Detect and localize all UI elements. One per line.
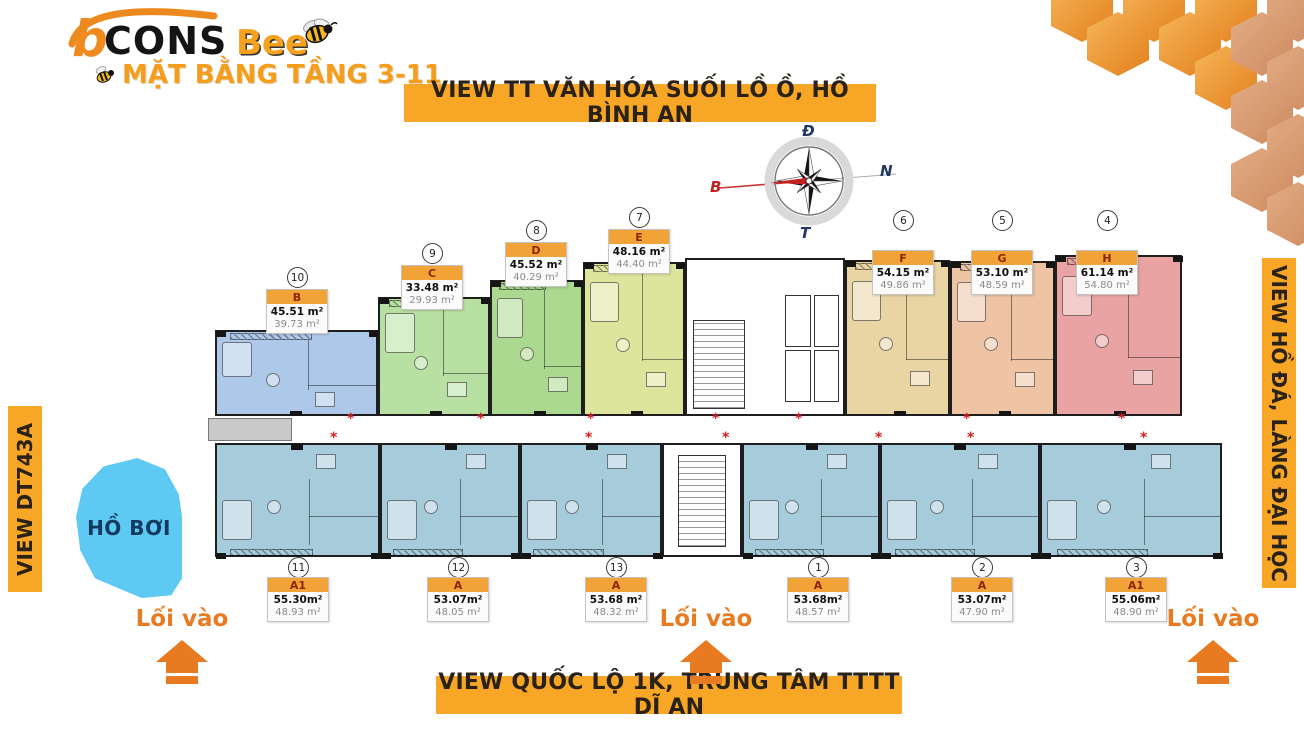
bathroom bbox=[646, 372, 666, 387]
elevator-cell bbox=[814, 295, 840, 347]
unit-area-usable: 48.05 m² bbox=[428, 606, 488, 621]
table bbox=[565, 500, 579, 514]
corridor-marker: * bbox=[587, 414, 594, 424]
unit-card-H-4: H61.14 m²54.80 m² bbox=[1076, 250, 1138, 295]
bed bbox=[387, 500, 417, 540]
unit-code: A1 bbox=[268, 578, 328, 592]
unit-number-badge: 7 bbox=[629, 207, 650, 228]
bed bbox=[887, 500, 917, 540]
stair-core-bottom bbox=[662, 443, 742, 557]
unit-area-construction: 45.52 m² bbox=[506, 257, 566, 271]
room-divider bbox=[460, 479, 461, 545]
unit-floorplan-A-2 bbox=[880, 443, 1040, 557]
entrance-arrow-part bbox=[166, 676, 198, 684]
unit-floorplan-A-13 bbox=[520, 443, 662, 557]
balcony-hatch bbox=[1057, 549, 1148, 556]
unit-card-C-9: C33.48 m²29.93 m² bbox=[401, 265, 463, 310]
room-divider bbox=[642, 359, 685, 360]
unit-floorplan-A1-3 bbox=[1040, 443, 1222, 557]
wall-pier bbox=[806, 444, 818, 450]
corridor-marker: * bbox=[795, 414, 802, 424]
bathroom bbox=[1015, 372, 1035, 387]
entrance-arrow-part bbox=[690, 676, 722, 684]
room-divider bbox=[602, 479, 603, 545]
entrance-arrow-icon bbox=[156, 640, 208, 684]
table bbox=[267, 500, 281, 514]
stair-elevator-core bbox=[685, 258, 845, 416]
bathroom bbox=[315, 392, 335, 407]
bathroom bbox=[1151, 454, 1171, 469]
bed bbox=[385, 313, 415, 353]
wall-pier bbox=[445, 444, 457, 450]
unit-floorplan-B bbox=[215, 330, 378, 416]
entrance-label: Lối vào bbox=[127, 606, 237, 632]
corridor-marker: * bbox=[963, 414, 970, 424]
unit-area-usable: 44.40 m² bbox=[609, 258, 669, 273]
bed bbox=[749, 500, 779, 540]
unit-area-usable: 39.73 m² bbox=[267, 318, 327, 333]
wall-pier bbox=[1041, 553, 1051, 559]
entrance-arrow-part bbox=[1197, 662, 1229, 673]
unit-floorplan-A-1 bbox=[742, 443, 880, 557]
bathroom bbox=[1133, 370, 1153, 385]
corridor-marker: * bbox=[1140, 433, 1147, 443]
table bbox=[424, 500, 438, 514]
unit-floorplan-A-12 bbox=[380, 443, 520, 557]
bed bbox=[497, 298, 523, 338]
unit-area-construction: 55.06m² bbox=[1106, 592, 1166, 606]
balcony-hatch bbox=[230, 549, 313, 556]
elevator-cell bbox=[785, 295, 811, 347]
bathroom bbox=[447, 382, 467, 397]
balcony-hatch bbox=[230, 333, 312, 340]
unit-card-F-6: F54.15 m²49.86 m² bbox=[872, 250, 934, 295]
staircase bbox=[678, 455, 726, 547]
unit-area-usable: 40.29 m² bbox=[506, 271, 566, 286]
unit-number-badge: 1 bbox=[808, 557, 829, 578]
balcony-hatch bbox=[755, 549, 824, 556]
room-divider bbox=[309, 516, 378, 517]
floorplan: *************10B45.51 m²39.73 m²9C33.48 … bbox=[0, 0, 1304, 729]
table bbox=[879, 337, 893, 351]
room-divider bbox=[906, 359, 950, 360]
entrance-arrow-part bbox=[166, 662, 198, 673]
unit-code: G bbox=[972, 251, 1032, 265]
wall-pier bbox=[379, 298, 389, 304]
bathroom bbox=[466, 454, 486, 469]
unit-area-usable: 49.86 m² bbox=[873, 279, 933, 294]
entrance-label: Lối vào bbox=[651, 606, 761, 632]
room-divider bbox=[821, 479, 822, 545]
unit-area-construction: 53.68m² bbox=[788, 592, 848, 606]
room-divider bbox=[1144, 516, 1220, 517]
bed bbox=[590, 282, 619, 322]
wall-pier bbox=[216, 331, 226, 337]
corridor-marker: * bbox=[477, 414, 484, 424]
unit-code: B bbox=[267, 290, 327, 304]
unit-area-usable: 48.32 m² bbox=[586, 606, 646, 621]
unit-code: C bbox=[402, 266, 462, 280]
room-divider bbox=[602, 516, 662, 517]
room-divider bbox=[308, 340, 309, 390]
wall-pier bbox=[1173, 256, 1183, 262]
unit-card-D-8: D45.52 m²40.29 m² bbox=[505, 242, 567, 287]
corridor-marker: * bbox=[330, 433, 337, 443]
bathroom bbox=[978, 454, 998, 469]
unit-number-badge: 8 bbox=[526, 220, 547, 241]
unit-code: F bbox=[873, 251, 933, 265]
table bbox=[984, 337, 998, 351]
unit-card-G-5: G53.10 m²48.59 m² bbox=[971, 250, 1033, 295]
bathroom bbox=[316, 454, 336, 469]
unit-number-badge: 9 bbox=[422, 243, 443, 264]
wall-pier bbox=[381, 553, 391, 559]
corridor-marker: * bbox=[712, 414, 719, 424]
unit-area-construction: 53.10 m² bbox=[972, 265, 1032, 279]
bed bbox=[222, 500, 252, 540]
entrance-label: Lối vào bbox=[1158, 606, 1268, 632]
unit-area-usable: 54.80 m² bbox=[1077, 279, 1137, 294]
entrance-arrow-part bbox=[1187, 640, 1239, 662]
corridor-marker: * bbox=[585, 433, 592, 443]
unit-number-badge: 6 bbox=[893, 210, 914, 231]
bathroom bbox=[607, 454, 627, 469]
elevator-cell bbox=[814, 350, 840, 402]
table bbox=[930, 500, 944, 514]
unit-card-A-13: A53.68 m²48.32 m² bbox=[585, 577, 647, 622]
wall-pier bbox=[1124, 444, 1136, 450]
unit-number-badge: 13 bbox=[606, 557, 627, 578]
unit-code: A bbox=[428, 578, 488, 592]
wall-pier bbox=[491, 281, 501, 287]
wall-pier bbox=[216, 553, 226, 559]
entrance-arrow-icon bbox=[1187, 640, 1239, 684]
unit-area-construction: 45.51 m² bbox=[267, 304, 327, 318]
entrance-arrow-icon bbox=[680, 640, 732, 684]
unit-code: E bbox=[609, 230, 669, 244]
room-divider bbox=[1011, 359, 1055, 360]
unit-floorplan-C bbox=[378, 297, 490, 416]
bed bbox=[1047, 500, 1077, 540]
balcony-hatch bbox=[533, 549, 604, 556]
room-divider bbox=[1128, 357, 1181, 358]
unit-number-badge: 5 bbox=[992, 210, 1013, 231]
service-box bbox=[208, 418, 292, 441]
unit-floorplan-D bbox=[490, 280, 583, 416]
table bbox=[785, 500, 799, 514]
unit-card-A-2: A53.07m²47.90 m² bbox=[951, 577, 1013, 622]
table bbox=[1095, 334, 1109, 348]
wall-pier bbox=[951, 262, 961, 268]
corridor-marker: * bbox=[967, 433, 974, 443]
entrance-arrow-part bbox=[156, 640, 208, 662]
balcony-hatch bbox=[895, 549, 975, 556]
unit-card-A-1: A53.68m²48.57 m² bbox=[787, 577, 849, 622]
unit-number-badge: 2 bbox=[972, 557, 993, 578]
room-divider bbox=[309, 479, 310, 545]
unit-number-badge: 11 bbox=[288, 557, 309, 578]
table bbox=[520, 347, 534, 361]
bed bbox=[527, 500, 557, 540]
unit-area-usable: 29.93 m² bbox=[402, 294, 462, 309]
room-divider bbox=[460, 516, 519, 517]
room-divider bbox=[821, 516, 879, 517]
wall-pier bbox=[743, 553, 753, 559]
elevator-cell bbox=[785, 350, 811, 402]
unit-number-badge: 10 bbox=[287, 267, 308, 288]
bathroom bbox=[910, 371, 930, 386]
unit-area-usable: 48.59 m² bbox=[972, 279, 1032, 294]
bed bbox=[222, 342, 252, 376]
bathroom bbox=[548, 377, 568, 392]
unit-card-E-7: E48.16 m²44.40 m² bbox=[608, 229, 670, 274]
room-divider bbox=[544, 366, 583, 367]
unit-area-usable: 48.90 m² bbox=[1106, 606, 1166, 621]
table bbox=[266, 373, 280, 387]
wall-pier bbox=[584, 263, 594, 269]
corridor-marker: * bbox=[875, 433, 882, 443]
table bbox=[616, 338, 630, 352]
floorplan-poster: b CONS Bee MẶT BẰNG TẦNG 3-11 VIEW TT VĂ… bbox=[0, 0, 1304, 729]
corridor-marker: * bbox=[1118, 414, 1125, 424]
wall-pier bbox=[1056, 256, 1066, 262]
unit-area-construction: 54.15 m² bbox=[873, 265, 933, 279]
room-divider bbox=[642, 272, 643, 361]
unit-code: D bbox=[506, 243, 566, 257]
unit-code: A bbox=[788, 578, 848, 592]
wall-pier bbox=[291, 444, 303, 450]
balcony-hatch bbox=[393, 549, 463, 556]
unit-area-construction: 53.07m² bbox=[952, 592, 1012, 606]
room-divider bbox=[972, 516, 1039, 517]
unit-area-construction: 55.30m² bbox=[268, 592, 328, 606]
wall-pier bbox=[881, 553, 891, 559]
unit-code: A bbox=[952, 578, 1012, 592]
bathroom bbox=[827, 454, 847, 469]
unit-number-badge: 12 bbox=[448, 557, 469, 578]
unit-floorplan-A1-11 bbox=[215, 443, 380, 557]
room-divider bbox=[1144, 479, 1145, 545]
unit-area-usable: 48.57 m² bbox=[788, 606, 848, 621]
unit-area-construction: 53.68 m² bbox=[586, 592, 646, 606]
room-divider bbox=[972, 479, 973, 545]
unit-area-usable: 47.90 m² bbox=[952, 606, 1012, 621]
room-divider bbox=[443, 307, 444, 376]
unit-card-A-12: A53.07m²48.05 m² bbox=[427, 577, 489, 622]
unit-card-A1-11: A155.30m²48.93 m² bbox=[267, 577, 329, 622]
wall-pier bbox=[846, 261, 856, 267]
room-divider bbox=[443, 373, 490, 374]
table bbox=[1097, 500, 1111, 514]
entrance-arrow-part bbox=[680, 640, 732, 662]
unit-code: H bbox=[1077, 251, 1137, 265]
elevator-bank bbox=[785, 295, 839, 402]
unit-area-construction: 53.07m² bbox=[428, 592, 488, 606]
entrance-arrow-part bbox=[690, 662, 722, 673]
unit-floorplan-E bbox=[583, 262, 685, 416]
unit-code: A1 bbox=[1106, 578, 1166, 592]
unit-area-construction: 48.16 m² bbox=[609, 244, 669, 258]
entrance-arrow-part bbox=[1197, 676, 1229, 684]
room-divider bbox=[308, 385, 376, 386]
unit-area-usable: 48.93 m² bbox=[268, 606, 328, 621]
unit-area-construction: 33.48 m² bbox=[402, 280, 462, 294]
corridor-marker: * bbox=[722, 433, 729, 443]
unit-number-badge: 4 bbox=[1097, 210, 1118, 231]
wall-pier bbox=[1213, 553, 1223, 559]
wall-pier bbox=[521, 553, 531, 559]
table bbox=[414, 356, 428, 370]
wall-pier bbox=[954, 444, 966, 450]
staircase bbox=[693, 320, 745, 408]
unit-code: A bbox=[586, 578, 646, 592]
unit-area-construction: 61.14 m² bbox=[1077, 265, 1137, 279]
room-divider bbox=[544, 290, 545, 369]
corridor-marker: * bbox=[347, 414, 354, 424]
unit-card-B-10: B45.51 m²39.73 m² bbox=[266, 289, 328, 334]
unit-number-badge: 3 bbox=[1126, 557, 1147, 578]
